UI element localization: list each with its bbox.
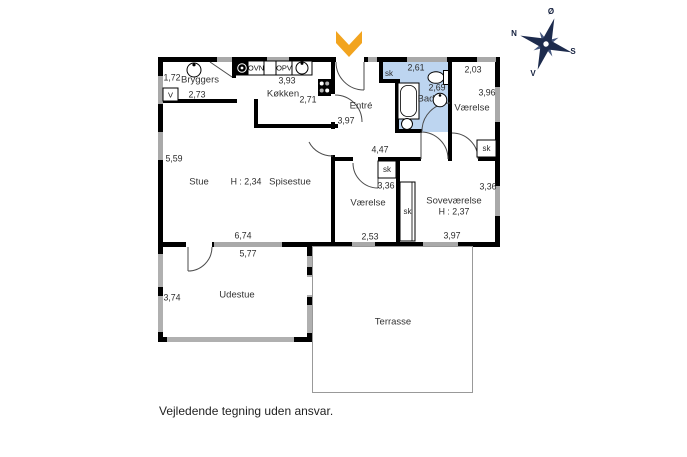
compass-north-label: N [511, 30, 517, 38]
closet-label-bad: sk [385, 70, 393, 78]
dim-sovevaerelse-ceiling-height: H : 2,37 [439, 207, 470, 216]
oven-label: OVN [248, 64, 264, 72]
closet-label-hall: sk [383, 166, 391, 174]
dim-vaerelse-s-width: 2,53 [361, 233, 378, 242]
ventilation-label: V [168, 91, 173, 99]
basin-icon [402, 119, 413, 130]
entrance-arrow-icon [336, 31, 362, 57]
room-label-sovevaerelse: Soveværelse [426, 196, 481, 206]
room-label-vaerelse-ne: Værelse [454, 103, 489, 113]
dim-bad-width: 2,61 [407, 64, 424, 73]
room-label-vaerelse-s: Værelse [350, 198, 385, 208]
closet-label-vaerelse-ne: sk [483, 145, 491, 153]
dim-bad-depth: 2,69 [428, 84, 445, 93]
compass-rose-icon [512, 10, 580, 78]
dim-udestue-width: 5,77 [239, 250, 256, 259]
room-label-spisestue: Spisestue [269, 177, 311, 187]
dim-vaerelse-ne-width: 2,03 [464, 66, 481, 75]
dim-stue-depth: 5,59 [165, 155, 182, 164]
room-label-bad: Bad [418, 94, 435, 104]
room-label-kokken: Køkken [267, 89, 299, 99]
dim-vaerelse-s-depth: 3,36 [377, 182, 394, 191]
cooktop-icon [318, 79, 331, 96]
dishwasher-label: OPV [276, 64, 292, 72]
dim-entre-depth: 3,97 [337, 117, 354, 126]
dim-bryggers-width: 2,73 [188, 91, 205, 100]
dim-sovevaerelse-width: 3,97 [443, 232, 460, 241]
floor-plan-drawing [0, 0, 687, 457]
dim-udestue-depth: 3,74 [163, 294, 180, 303]
room-label-bryggers: Bryggers [181, 75, 219, 85]
dim-kokken-depth: 2,71 [299, 96, 316, 105]
dim-hall-width: 4,47 [371, 146, 388, 155]
dim-bryggers-depth: 1,72 [163, 74, 180, 83]
room-label-udestue: Udestue [219, 290, 254, 300]
dim-sovevaerelse-depth: 3,36 [479, 183, 496, 192]
room-label-terrasse: Terrasse [375, 317, 411, 327]
kitchen-sink-icon [296, 62, 308, 74]
dim-kokken-width: 3,93 [278, 77, 295, 86]
room-label-stue: Stue [189, 177, 209, 187]
dim-stue-width: 6,74 [234, 232, 251, 241]
compass-south-label: S [570, 48, 575, 56]
disclaimer-text: Vejledende tegning uden ansvar. [159, 404, 333, 418]
room-label-entre: Entré [350, 101, 373, 111]
compass-east-label: Ø [548, 8, 554, 16]
bathtub-icon [398, 83, 419, 119]
closet-label-sovevaerelse: sk [404, 208, 412, 216]
dim-vaerelse-ne-depth: 3,96 [478, 89, 495, 98]
dim-stue-ceiling-height: H : 2,34 [231, 178, 262, 187]
floor-plan-page: 1,72 Bryggers V 2,73 OVN OPV 3,93 Køkken… [0, 0, 687, 457]
bath-sink-icon [433, 93, 447, 107]
compass-west-label: V [530, 70, 535, 78]
